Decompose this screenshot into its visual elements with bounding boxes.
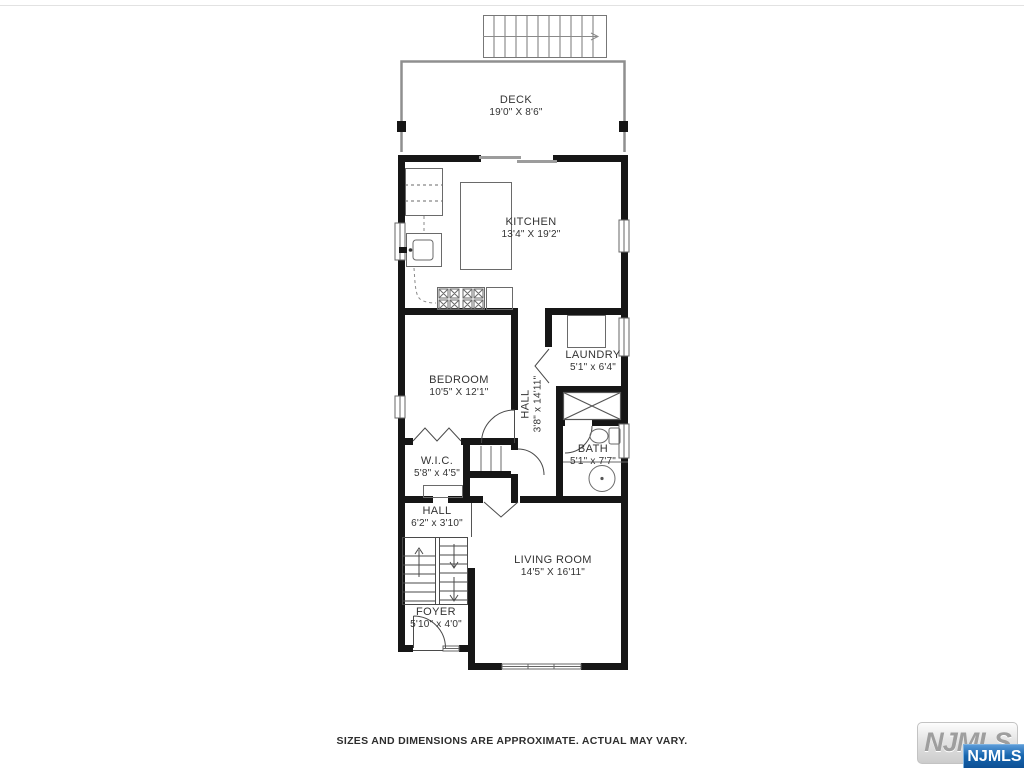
- shaft-xbox: [564, 393, 621, 420]
- room-label-deck: DECK 19'0" X 8'6": [489, 94, 542, 119]
- room-label-bedroom: BEDROOM 10'5" X 12'1": [429, 374, 489, 399]
- floorplan-page: DECK 19'0" X 8'6" KITCHEN 13'4" X 19'2" …: [0, 0, 1024, 768]
- disclaimer-text: SIZES AND DIMENSIONS ARE APPROXIMATE. AC…: [337, 735, 688, 747]
- toilet-bowl: [590, 429, 608, 443]
- room-label-wic: W.I.C. 5'8" x 4'5": [414, 455, 460, 480]
- deck-stairs: [483, 16, 607, 58]
- sliding-door: [479, 156, 557, 163]
- toilet-tank: [609, 428, 620, 444]
- stairs-down-arrow: [450, 577, 458, 601]
- laundry-fixtures: [568, 316, 606, 348]
- room-label-living-room: LIVING ROOM 14'5" X 16'11": [514, 554, 592, 579]
- stove-burners: [439, 289, 483, 309]
- closet-shelves: [481, 446, 501, 471]
- main-staircase: [403, 538, 468, 605]
- kitchen-cabinet: [487, 288, 513, 310]
- washer: [568, 316, 606, 348]
- stairs-up-arrow: [415, 548, 423, 577]
- stairs-down-arrow: [450, 544, 458, 568]
- kitchen-fixtures: [399, 169, 513, 310]
- room-label-hall-lower: HALL 6'2" x 3'10": [411, 505, 463, 530]
- room-label-laundry: LAUNDRY 5'1" x 6'4": [565, 349, 620, 374]
- room-label-bath: BATH 5'1" x 7'7": [570, 443, 616, 468]
- room-label-kitchen: KITCHEN 13'4" X 19'2": [501, 216, 560, 241]
- room-label-foyer: FOYER 5'10" x 4'0": [410, 606, 462, 631]
- wic-shelf: [424, 486, 463, 498]
- room-label-hall-upper: HALL 3'8" x 14'11": [520, 376, 545, 433]
- kitchen-counter: [406, 169, 443, 216]
- njmls-badge: NJMLS: [963, 744, 1024, 768]
